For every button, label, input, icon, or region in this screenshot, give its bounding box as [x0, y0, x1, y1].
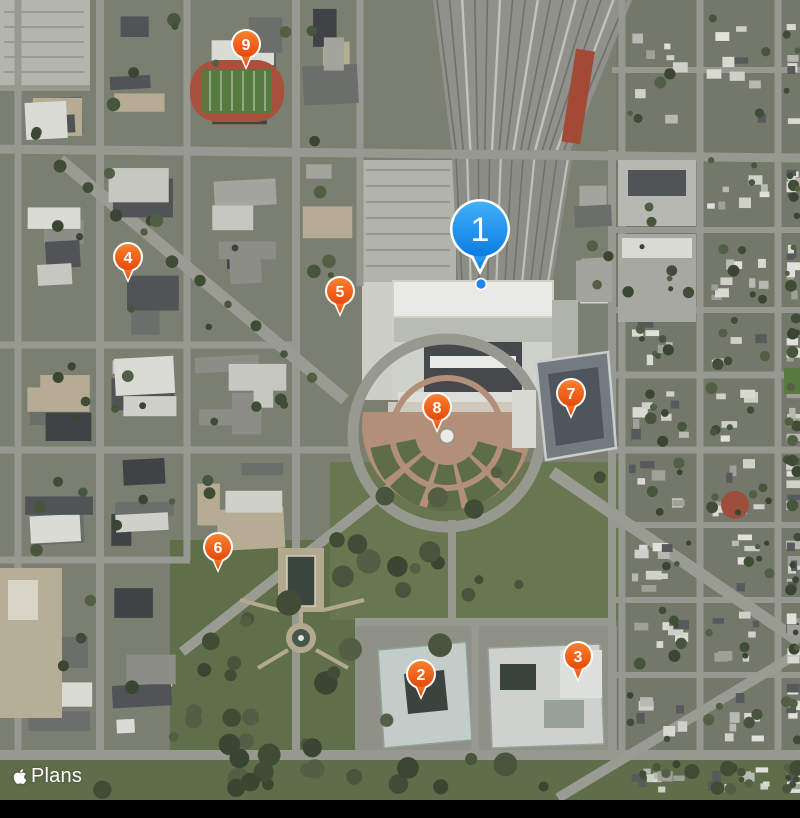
map-marker-4[interactable]: 4 — [108, 240, 148, 286]
map-marker-7[interactable]: 7 — [551, 376, 591, 422]
svg-text:6: 6 — [214, 540, 223, 557]
map-watermark: Plans — [13, 765, 82, 788]
map-marker-5[interactable]: 5 — [320, 274, 360, 320]
marker-layer: 123456789 — [0, 0, 800, 800]
svg-text:8: 8 — [433, 400, 442, 417]
apple-logo-icon — [13, 768, 27, 785]
svg-text:5: 5 — [336, 284, 345, 301]
svg-text:2: 2 — [417, 667, 426, 684]
map-marker-8[interactable]: 8 — [417, 390, 457, 436]
watermark-label: Plans — [31, 765, 82, 788]
satellite-map[interactable]: 123456789 Plans — [0, 0, 800, 800]
svg-text:9: 9 — [242, 37, 251, 54]
map-marker-2[interactable]: 2 — [401, 657, 441, 703]
svg-text:7: 7 — [567, 386, 576, 403]
map-marker-6[interactable]: 6 — [198, 530, 238, 576]
svg-text:3: 3 — [574, 649, 583, 666]
map-marker-1[interactable]: 1 — [443, 198, 517, 278]
map-marker-3[interactable]: 3 — [558, 639, 598, 685]
svg-text:4: 4 — [124, 250, 133, 267]
selected-location-dot — [474, 277, 488, 291]
map-marker-9[interactable]: 9 — [226, 27, 266, 73]
svg-text:1: 1 — [471, 211, 490, 249]
